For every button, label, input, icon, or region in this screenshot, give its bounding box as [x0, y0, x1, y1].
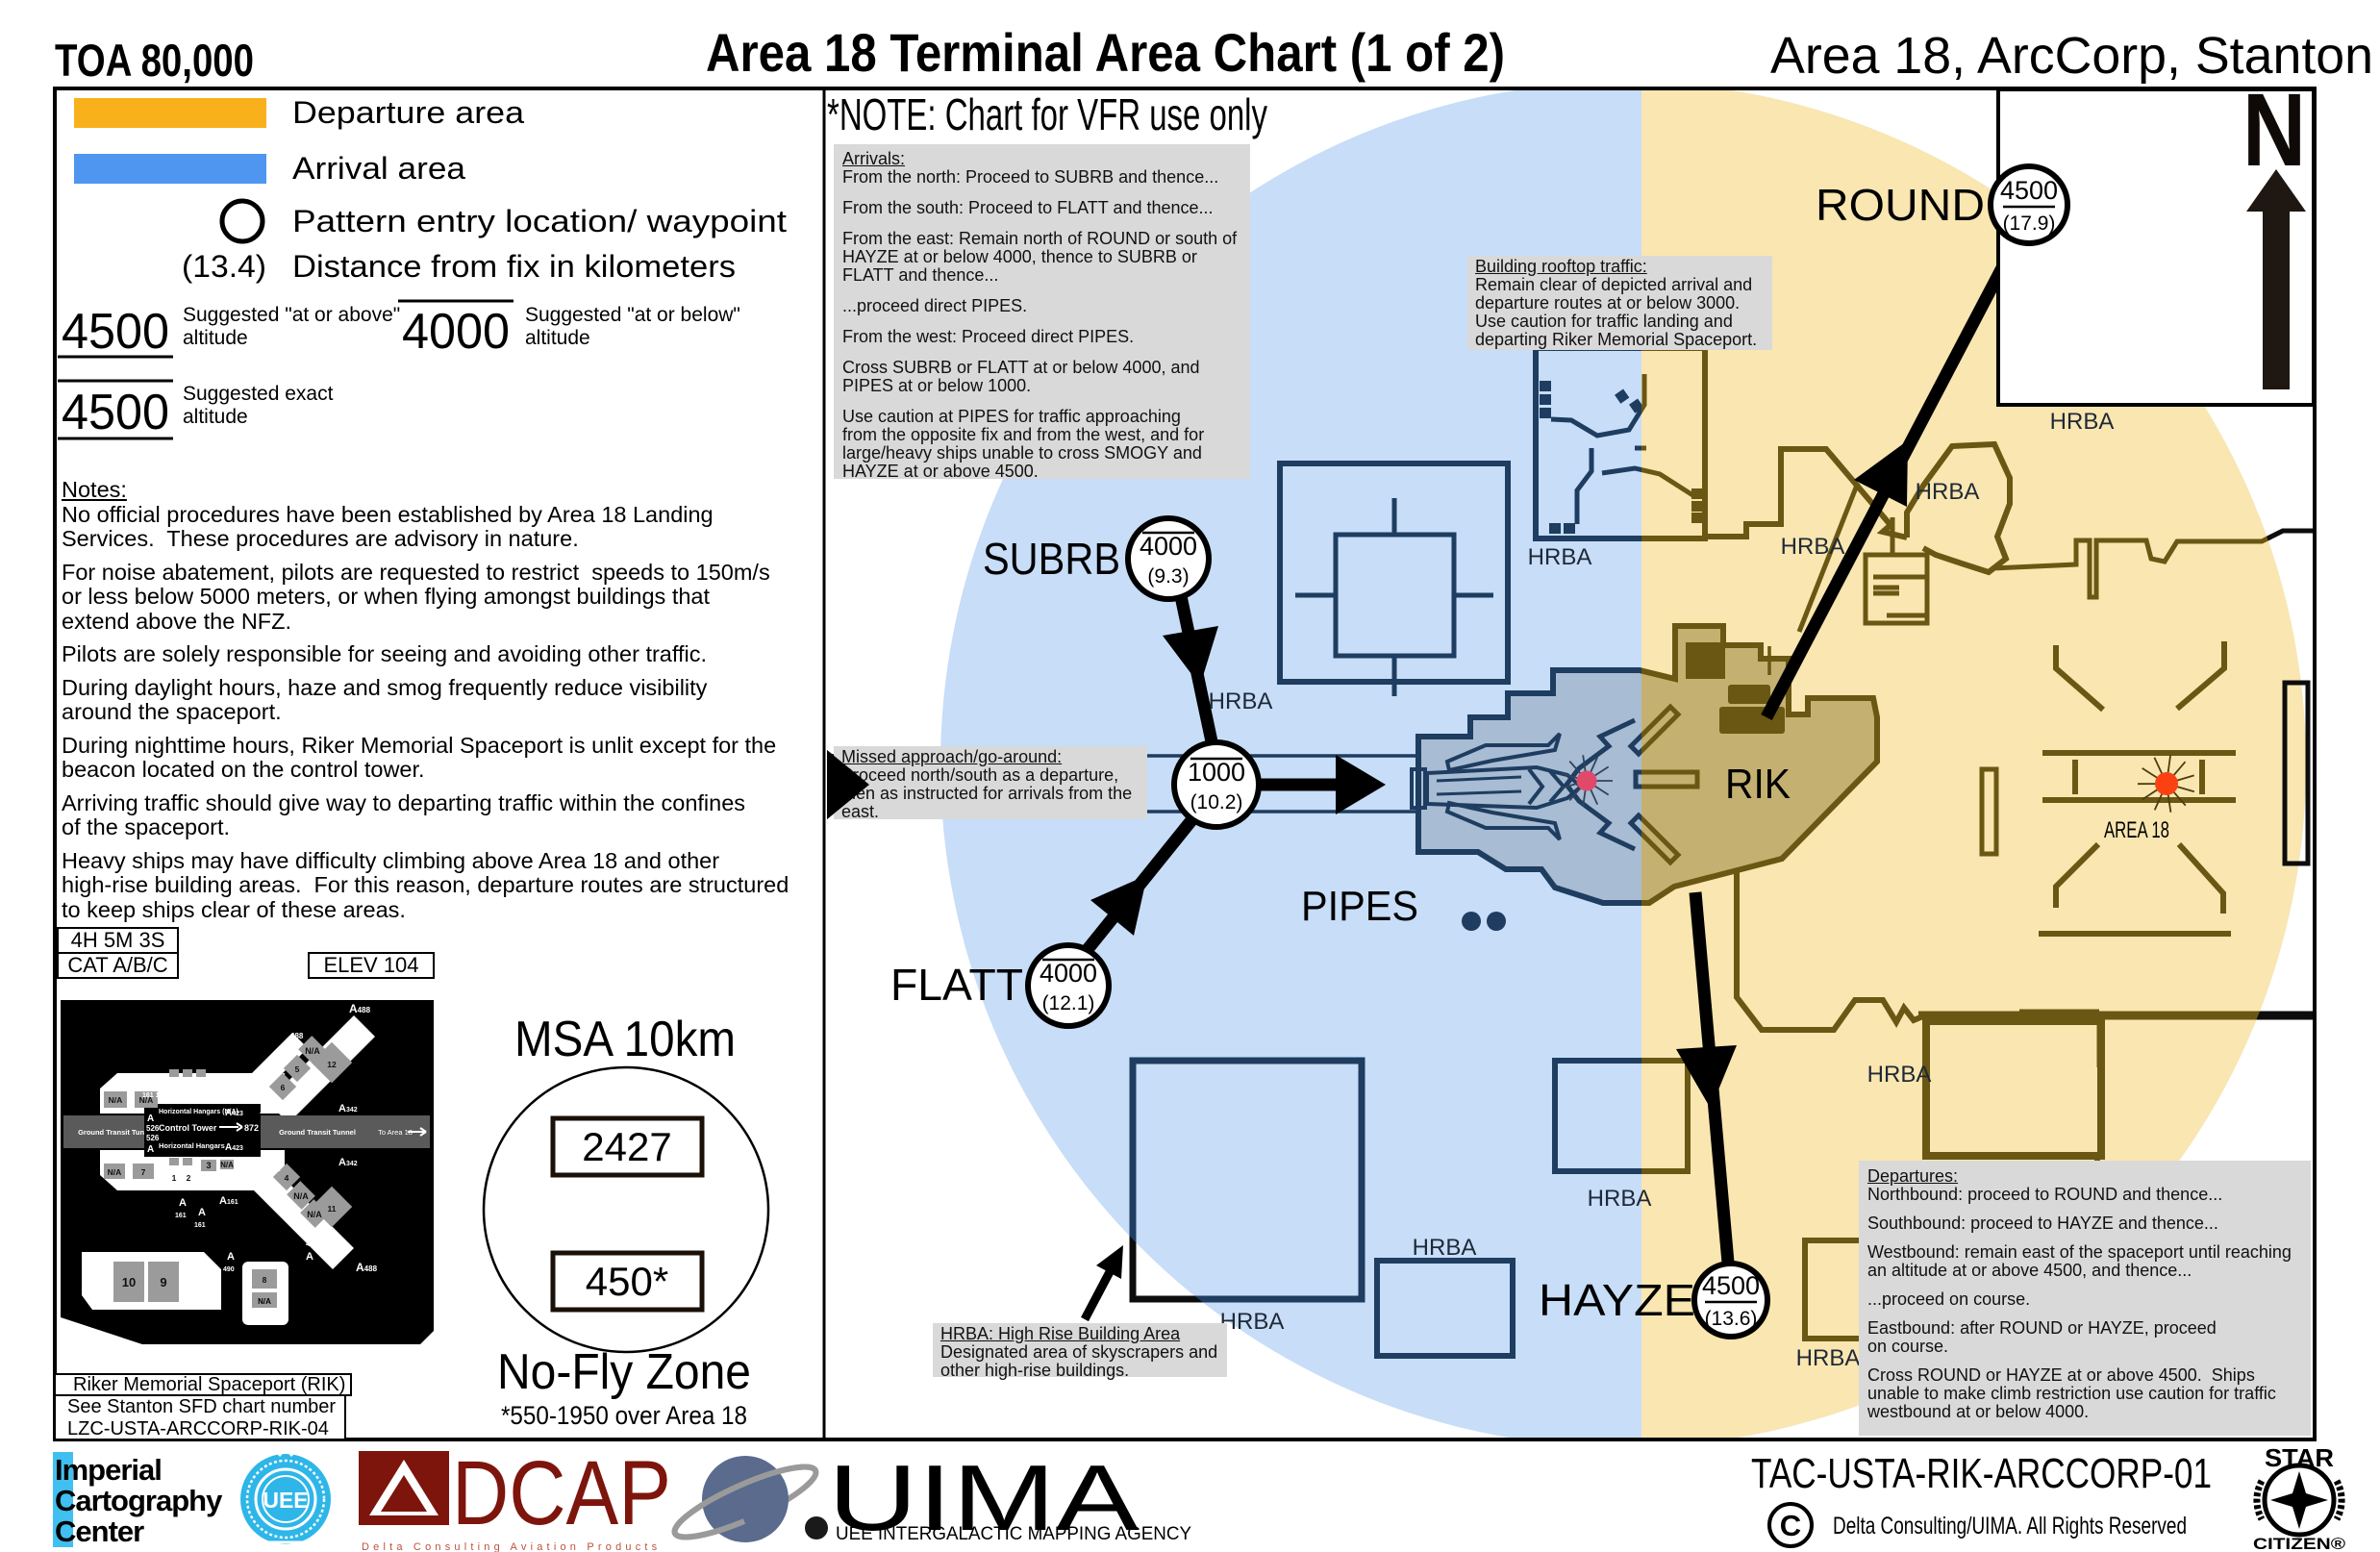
svg-text:N/A: N/A	[307, 1210, 322, 1219]
svg-text:9: 9	[160, 1275, 166, 1289]
svg-text:N/A: N/A	[109, 1095, 123, 1105]
svg-text:2: 2	[187, 1173, 191, 1183]
svg-text:A: A	[147, 1114, 154, 1124]
svg-text:A: A	[197, 1078, 205, 1089]
svg-text:N/A: N/A	[108, 1167, 122, 1177]
svg-text:490: 490	[223, 1266, 235, 1273]
svg-text:A: A	[159, 1078, 166, 1089]
svg-text:A: A	[147, 1144, 154, 1155]
svg-text:161 161: 161 161	[142, 1092, 166, 1099]
svg-text:A: A	[290, 1041, 298, 1053]
svg-text:N/A: N/A	[258, 1297, 271, 1306]
svg-text:A: A	[227, 1251, 235, 1263]
svg-text:8: 8	[263, 1275, 267, 1285]
svg-text:11: 11	[328, 1204, 337, 1214]
svg-text:384: 384	[248, 1316, 260, 1323]
svg-text:12: 12	[327, 1060, 337, 1069]
svg-text:488: 488	[290, 1032, 304, 1040]
svg-text:7: 7	[141, 1167, 146, 1177]
svg-text:526: 526	[146, 1124, 160, 1133]
svg-text:4: 4	[285, 1173, 289, 1183]
svg-text:526: 526	[146, 1134, 160, 1142]
svg-text:UEE INTERGALACTIC MAPPING AGEN: UEE INTERGALACTIC MAPPING AGENCY	[836, 1524, 1191, 1544]
svg-text:N/A: N/A	[293, 1191, 309, 1201]
svg-text:A: A	[144, 1078, 152, 1089]
svg-text:5: 5	[295, 1064, 300, 1074]
svg-text:Ground Transit Tunnel: Ground Transit Tunnel	[279, 1128, 356, 1137]
svg-text:Ground Transit Tunnel: Ground Transit Tunnel	[78, 1128, 155, 1137]
svg-text:10: 10	[122, 1275, 136, 1289]
svg-text:CITIZEN®: CITIZEN®	[2253, 1535, 2346, 1552]
svg-text:1: 1	[172, 1173, 177, 1183]
svg-text:Delta Consulting Aviation Prod: Delta Consulting Aviation Products	[362, 1541, 661, 1552]
svg-text:Delta Consulting/UIMA. All Ri: Delta Consulting/UIMA. All Rights Reserv…	[1833, 1513, 2187, 1539]
svg-text:A: A	[179, 1197, 187, 1209]
svg-text:872: 872	[244, 1123, 259, 1133]
svg-text:Horizontal Hangars: Horizontal Hangars	[159, 1141, 225, 1150]
svg-text:A: A	[306, 1251, 313, 1263]
svg-text:To Area 18: To Area 18	[378, 1128, 413, 1137]
svg-text:161: 161	[195, 1092, 207, 1099]
svg-text:161: 161	[175, 1213, 187, 1219]
svg-text:UEE: UEE	[263, 1488, 308, 1513]
svg-text:A: A	[198, 1207, 206, 1218]
svg-text:Control Tower: Control Tower	[159, 1123, 217, 1133]
svg-text:N/A: N/A	[220, 1161, 234, 1169]
svg-text:A: A	[262, 1314, 269, 1326]
svg-text:6: 6	[281, 1083, 286, 1092]
svg-text:C: C	[1780, 1509, 1801, 1542]
svg-text:3: 3	[206, 1161, 211, 1170]
svg-text:TAC-USTA-RIK-ARCCORP-01: TAC-USTA-RIK-ARCCORP-01	[1751, 1450, 2212, 1497]
svg-text:N/A: N/A	[305, 1046, 320, 1056]
svg-text:488: 488	[306, 1239, 319, 1248]
svg-text:161: 161	[194, 1222, 206, 1229]
svg-text:DCAP: DCAP	[452, 1442, 671, 1544]
